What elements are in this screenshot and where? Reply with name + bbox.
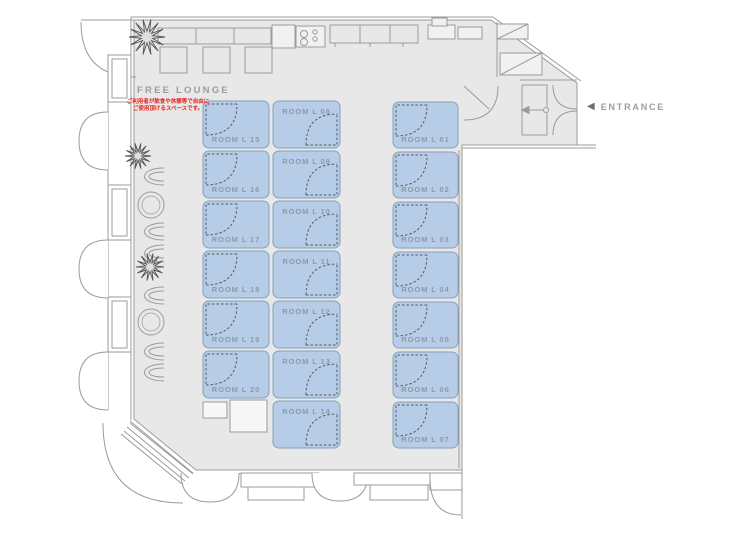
room-l-04-label: ROOM L 04 <box>401 285 449 294</box>
room-l-05-label: ROOM L 05 <box>401 335 449 344</box>
room-l-17-label: ROOM L 17 <box>212 235 260 244</box>
window-bay-bump <box>79 240 108 298</box>
room-l-20-label: ROOM L 20 <box>212 385 260 394</box>
room-l-02: ROOM L 02 <box>393 152 458 198</box>
room-l-15: ROOM L 15 <box>203 101 269 148</box>
room-l-06: ROOM L 06 <box>393 352 458 398</box>
window-frame-inner <box>112 189 127 236</box>
room-l-07-label: ROOM L 07 <box>401 435 449 444</box>
room-l-08: ROOM L 08 <box>273 101 340 148</box>
window-bay-bump <box>79 112 108 170</box>
rooms-layer: ROOM L 15ROOM L 16ROOM L 17ROOM L 18ROOM… <box>203 101 458 448</box>
room-l-03-label: ROOM L 03 <box>401 235 449 244</box>
entrance-text: ENTRANCE <box>601 102 665 112</box>
room-l-12: ROOM L 12 <box>273 301 340 348</box>
window-bay-bump <box>79 352 108 410</box>
kitchen-counter <box>272 25 295 48</box>
room-l-16-label: ROOM L 16 <box>212 185 260 194</box>
room-l-10-label: ROOM L 10 <box>282 207 330 216</box>
room-l-13: ROOM L 13 <box>273 351 340 398</box>
window-frame-inner <box>112 59 127 98</box>
small-table <box>230 400 267 432</box>
small-table <box>203 402 227 418</box>
free-lounge-note-line2: ご使用頂けるスペースです。 <box>126 106 210 113</box>
kitchen-unit <box>458 27 482 39</box>
room-l-04: ROOM L 04 <box>393 252 458 298</box>
room-l-13-label: ROOM L 13 <box>282 357 330 366</box>
left-window-bays <box>79 20 136 410</box>
free-lounge-note-line1: ご利用者が飲食や休憩等で自由に <box>126 99 210 106</box>
room-l-11-label: ROOM L 11 <box>283 257 331 266</box>
room-l-19-label: ROOM L 19 <box>212 335 260 344</box>
room-l-19: ROOM L 19 <box>203 301 269 348</box>
room-l-12-label: ROOM L 12 <box>282 307 330 316</box>
window-bay-bump <box>181 473 239 502</box>
stove-burner-icon <box>296 26 325 47</box>
room-l-14-label: ROOM L 14 <box>282 407 330 416</box>
room-l-03: ROOM L 03 <box>393 202 458 248</box>
entrance-label: ◀ ENTRANCE <box>587 102 665 112</box>
room-l-09: ROOM L 09 <box>273 151 340 198</box>
room-l-11: ROOM L 11 <box>273 251 340 298</box>
room-l-01-label: ROOM L 01 <box>401 135 449 144</box>
room-l-18-label: ROOM L 18 <box>212 285 260 294</box>
left-triangle-icon: ◀ <box>587 102 595 112</box>
window-frame-inner <box>370 485 428 500</box>
window-frame-inner <box>112 301 127 348</box>
room-l-07: ROOM L 07 <box>393 402 458 448</box>
free-lounge-note: ご利用者が飲食や休憩等で自由に ご使用頂けるスペースです。 <box>126 99 210 112</box>
room-l-10: ROOM L 10 <box>273 201 340 248</box>
room-l-15-label: ROOM L 15 <box>212 135 260 144</box>
room-l-08-label: ROOM L 08 <box>282 107 330 116</box>
floor-plan-canvas: ROOM L 15ROOM L 16ROOM L 17ROOM L 18ROOM… <box>0 0 738 535</box>
room-l-05: ROOM L 05 <box>393 302 458 348</box>
window-frame-inner <box>248 487 304 500</box>
window-frame <box>241 473 319 487</box>
kitchen-sink-faucet <box>432 18 447 26</box>
room-l-17: ROOM L 17 <box>203 201 269 248</box>
room-l-20: ROOM L 20 <box>203 351 269 398</box>
room-l-14: ROOM L 14 <box>273 401 340 448</box>
kitchen-sink <box>428 25 455 39</box>
free-lounge-label: FREE LOUNGE <box>137 85 230 96</box>
room-l-18: ROOM L 18 <box>203 251 269 298</box>
room-l-01: ROOM L 01 <box>393 102 458 148</box>
window-frame <box>430 473 462 490</box>
room-l-16: ROOM L 16 <box>203 151 269 198</box>
room-l-02-label: ROOM L 02 <box>401 185 449 194</box>
floor-plan: ROOM L 15ROOM L 16ROOM L 17ROOM L 18ROOM… <box>0 0 738 535</box>
room-l-09-label: ROOM L 09 <box>282 157 330 166</box>
room-l-06-label: ROOM L 06 <box>401 385 449 394</box>
